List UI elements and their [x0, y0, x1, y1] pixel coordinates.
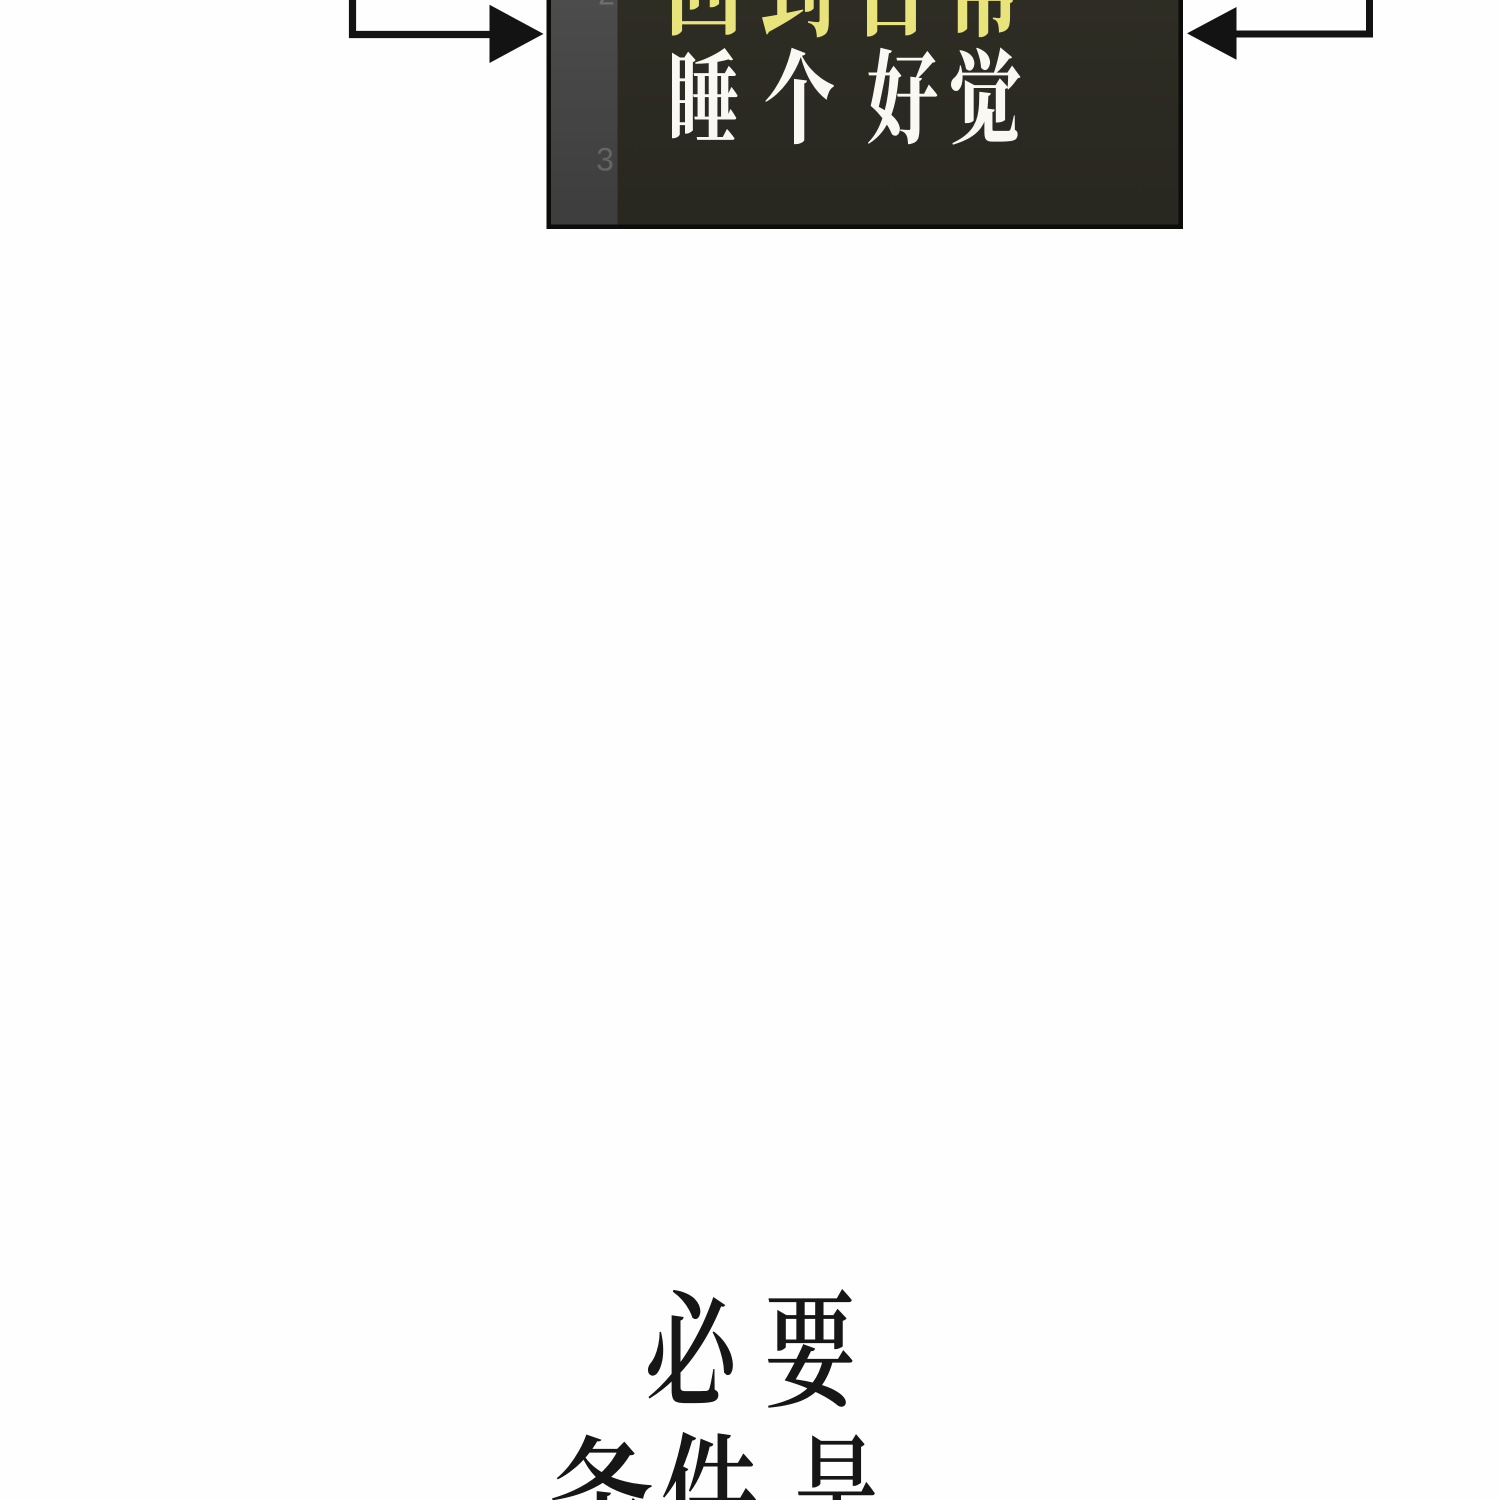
svg-text:3: 3 [596, 142, 614, 178]
svg-text:2: 2 [598, 0, 615, 12]
